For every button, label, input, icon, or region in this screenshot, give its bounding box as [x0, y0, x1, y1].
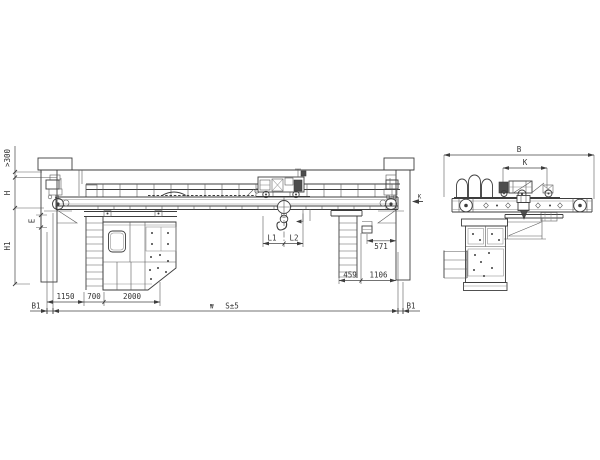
girder-outline: [56, 197, 398, 210]
elevation-view: >300 H H1 E L1 L2 571 459: [3, 146, 423, 314]
cab-suspension: [84, 212, 177, 217]
cab-rivet-dots: [149, 232, 169, 280]
crane-technical-drawing: >300 H H1 E L1 L2 571 459: [0, 0, 600, 460]
power-downlead-line: [79, 170, 82, 196]
dim-b1-left: B1: [31, 302, 40, 311]
dim-e: E: [28, 218, 37, 223]
bridge-girder: [56, 170, 400, 210]
left-wall-column-hatch: [41, 170, 57, 282]
right-corbel-hatch: [384, 158, 414, 170]
cable-drum-arches: [457, 175, 493, 197]
railing-gate-plate: [86, 185, 97, 197]
dim-l1: L1: [267, 234, 276, 243]
dim-l2: L2: [289, 234, 298, 243]
dim-h: H: [3, 190, 12, 195]
dim-459: 459: [343, 271, 357, 280]
dim-1106: 1106: [369, 271, 388, 280]
side-view: B K: [444, 145, 594, 291]
cab-body: [103, 222, 176, 290]
view-arrow-k: K: [412, 195, 423, 204]
drawing-svg: >300 H H1 E L1 L2 571 459: [0, 0, 600, 460]
support-bracket: [504, 213, 563, 240]
ladder-rungs: [339, 223, 357, 277]
span-mark: ₩: [210, 305, 214, 311]
dim-571-group: 571: [367, 234, 396, 251]
dim-1150: 1150: [56, 292, 75, 301]
dim-h1: H1: [3, 241, 12, 250]
left-corbel-hatch: [38, 158, 72, 170]
span-dimension: B1 B1 ₩ S±5: [30, 252, 420, 314]
dim-2000: 2000: [123, 292, 142, 301]
girder-stiffeners: [98, 206, 386, 210]
dim-k: K: [523, 158, 528, 167]
operator-cab-side: [462, 219, 508, 291]
hoist-trolley: [256, 169, 310, 198]
hook-approach-dims: L1 L2: [263, 209, 303, 247]
dim-700: 700: [87, 292, 101, 301]
bottom-dimension-chain: 1150 700 2000: [47, 213, 160, 314]
side-platform: [444, 251, 467, 279]
building-structure: [38, 158, 414, 282]
warning-flag: [301, 171, 306, 176]
railing-rails: [86, 184, 400, 190]
under-girder-platform: [331, 211, 362, 217]
dim-b: B: [517, 145, 522, 154]
operator-cab: [84, 211, 177, 291]
dim-span: S±5: [225, 302, 239, 311]
dim-k-group: K: [503, 158, 547, 188]
cab-side-dots: [472, 233, 500, 277]
trolley-machinery: [454, 175, 560, 198]
right-access-ladder: [310, 209, 372, 278]
datum-arrow: [296, 220, 302, 224]
girder-inner-lines: [56, 200, 398, 205]
dim-571: 571: [374, 242, 388, 251]
left-dimension-chain: >300 H H1 E: [3, 146, 57, 286]
dim-clearance-top: >300: [3, 148, 12, 167]
hook-block-side: [517, 196, 530, 220]
view-arrow-label: K: [418, 195, 422, 201]
dim-b1-right: B1: [406, 302, 415, 311]
